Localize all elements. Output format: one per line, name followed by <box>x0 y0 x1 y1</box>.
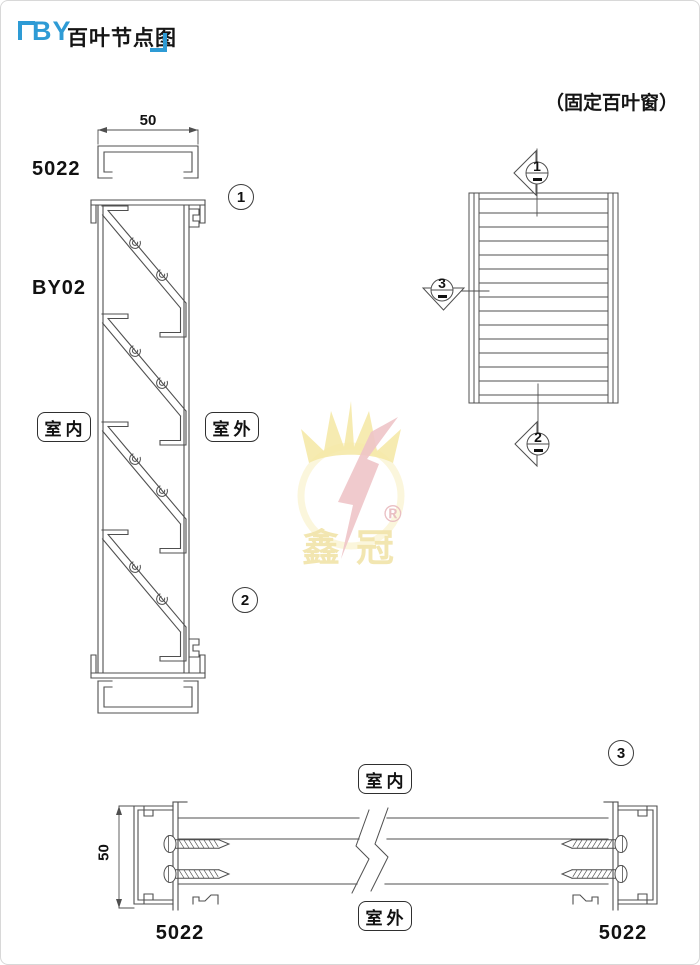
section-marker-2-dash <box>534 449 543 452</box>
title-prefix: BY <box>32 16 72 47</box>
detail-circle-3: 3 <box>608 740 634 766</box>
elevation-linework <box>423 149 618 466</box>
detail-circle-2: 2 <box>232 587 258 613</box>
section-marker-2: 2 <box>530 429 546 445</box>
plan-linework <box>116 802 657 910</box>
detail-circle-1: 1 <box>228 184 254 210</box>
louver-elevation-drawing <box>411 141 691 471</box>
title-close-bracket-icon <box>150 33 167 52</box>
subtitle: （固定百叶窗） <box>545 88 678 115</box>
detail-number-2: 2 <box>241 592 249 609</box>
section-marker-3: 3 <box>434 275 450 291</box>
frame-code-label: 5022 <box>32 158 81 181</box>
profile-code-label: BY02 <box>32 277 86 300</box>
indoor-label-box: 室内 <box>37 412 91 442</box>
section-marker-3-dash <box>438 295 447 298</box>
height-dimension-label: 50 <box>96 838 113 868</box>
frame-code-left-label: 5022 <box>153 922 207 945</box>
indoor-label: 室内 <box>45 415 87 440</box>
width-dimension-label: 50 <box>135 112 161 129</box>
section-linework <box>91 127 205 713</box>
outdoor-label: 室外 <box>213 415 255 440</box>
outdoor-label-box: 室外 <box>205 412 259 442</box>
drawing-sheet: 鑫冠 ® BY 百叶节点图 （固定百叶窗） <box>0 0 700 965</box>
detail-number-3: 3 <box>617 745 625 762</box>
plan-outdoor-label-box: 室外 <box>358 901 412 931</box>
frame-code-right-label: 5022 <box>596 922 650 945</box>
section-marker-1-dash <box>533 178 542 181</box>
registered-mark-icon: ® <box>384 501 402 529</box>
plan-outdoor-label: 室外 <box>366 904 408 929</box>
section-marker-1: 1 <box>529 158 545 174</box>
plan-indoor-label: 室内 <box>366 767 408 792</box>
plan-indoor-label-box: 室内 <box>358 764 412 794</box>
detail-number-1: 1 <box>237 189 245 206</box>
